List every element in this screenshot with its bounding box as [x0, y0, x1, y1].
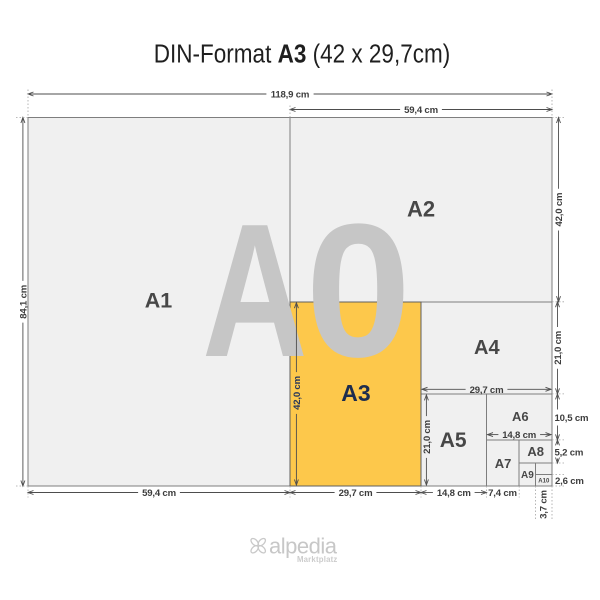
svg-text:A7: A7 [495, 456, 512, 471]
svg-text:DIN-Format A3 (42 x 29,7cm): DIN-Format A3 (42 x 29,7cm) [154, 40, 450, 69]
svg-text:42,0 cm: 42,0 cm [292, 376, 303, 410]
svg-text:A1: A1 [145, 289, 173, 313]
svg-text:59,4 cm: 59,4 cm [142, 488, 176, 499]
svg-text:10,5 cm: 10,5 cm [555, 413, 589, 424]
svg-text:A3: A3 [341, 380, 370, 406]
svg-text:5,2 cm: 5,2 cm [555, 448, 584, 459]
svg-text:A10: A10 [538, 479, 550, 485]
svg-text:A2: A2 [407, 196, 435, 221]
svg-text:A6: A6 [512, 409, 529, 424]
svg-text:A4: A4 [474, 337, 500, 359]
svg-text:118,9 cm: 118,9 cm [271, 90, 309, 101]
svg-text:A9: A9 [521, 470, 534, 481]
svg-text:A: A [202, 184, 307, 396]
svg-text:29,7 cm: 29,7 cm [470, 385, 504, 396]
svg-text:21,0 cm: 21,0 cm [553, 331, 564, 365]
svg-text:A5: A5 [440, 429, 467, 452]
svg-text:7,4 cm: 7,4 cm [488, 488, 517, 499]
svg-text:42,0 cm: 42,0 cm [554, 193, 565, 227]
svg-text:14,8 cm: 14,8 cm [437, 488, 471, 499]
svg-text:0: 0 [306, 185, 412, 397]
svg-text:A8: A8 [527, 444, 544, 459]
svg-text:2,6 cm: 2,6 cm [555, 476, 584, 487]
svg-text:59,4 cm: 59,4 cm [404, 105, 438, 116]
svg-text:3,7 cm: 3,7 cm [538, 490, 549, 519]
svg-text:29,7 cm: 29,7 cm [339, 488, 373, 499]
svg-text:84,1 cm: 84,1 cm [19, 285, 30, 319]
svg-text:21,0 cm: 21,0 cm [422, 420, 433, 454]
svg-text:14,8 cm: 14,8 cm [502, 430, 536, 441]
svg-text:Marktplatz: Marktplatz [297, 555, 338, 564]
